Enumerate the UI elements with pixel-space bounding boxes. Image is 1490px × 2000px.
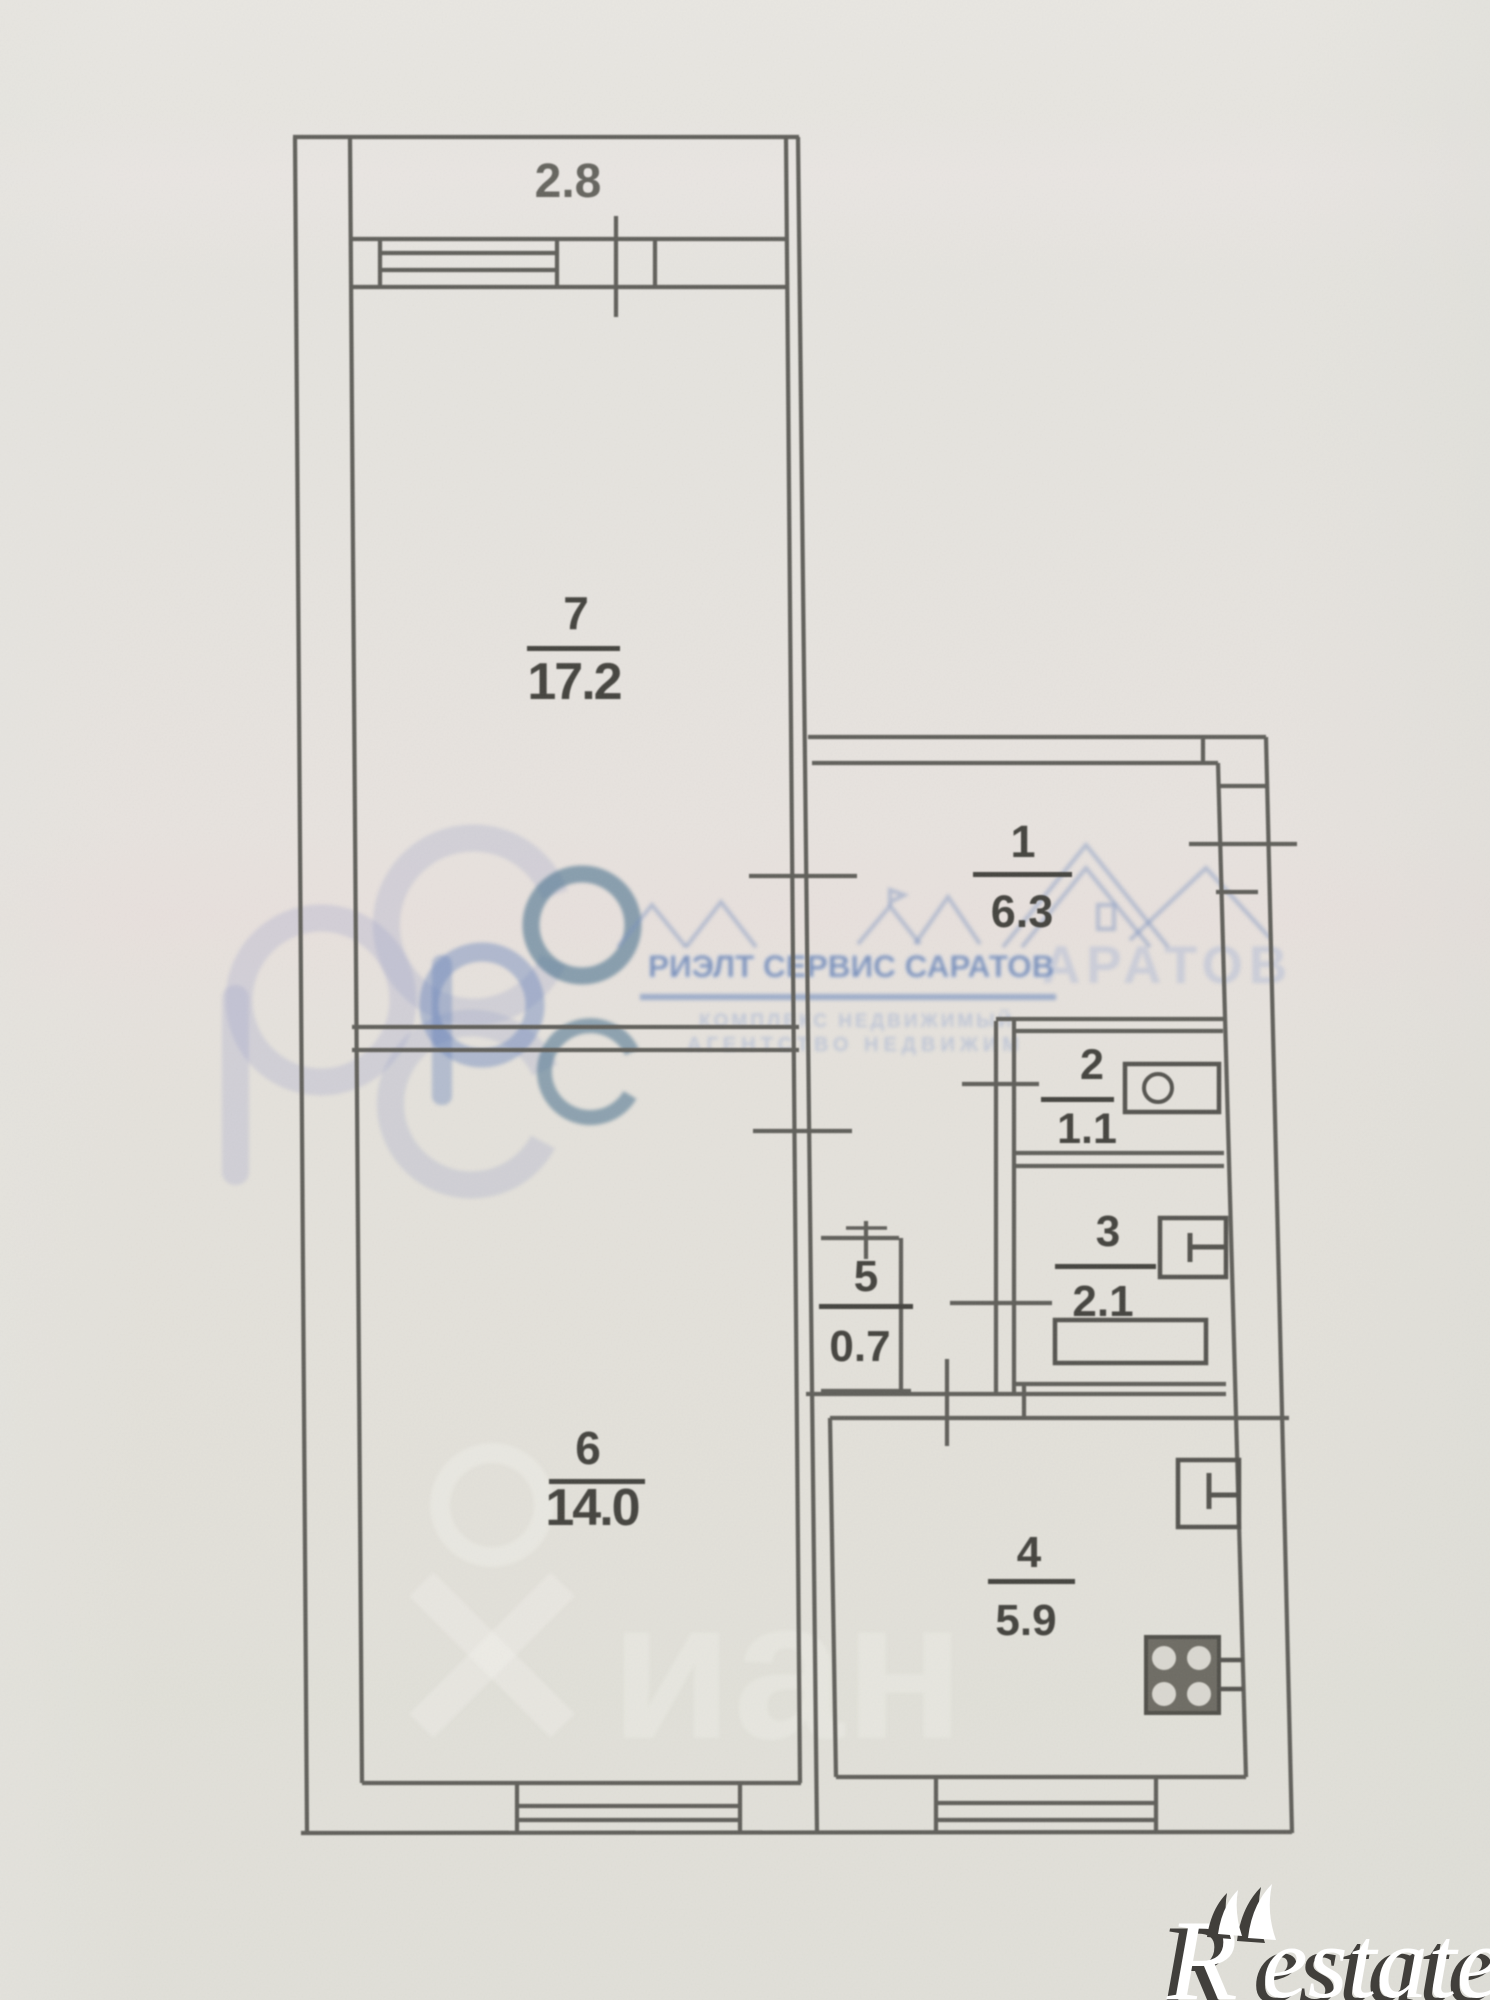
svg-text:estate: estate bbox=[1262, 1906, 1490, 2000]
